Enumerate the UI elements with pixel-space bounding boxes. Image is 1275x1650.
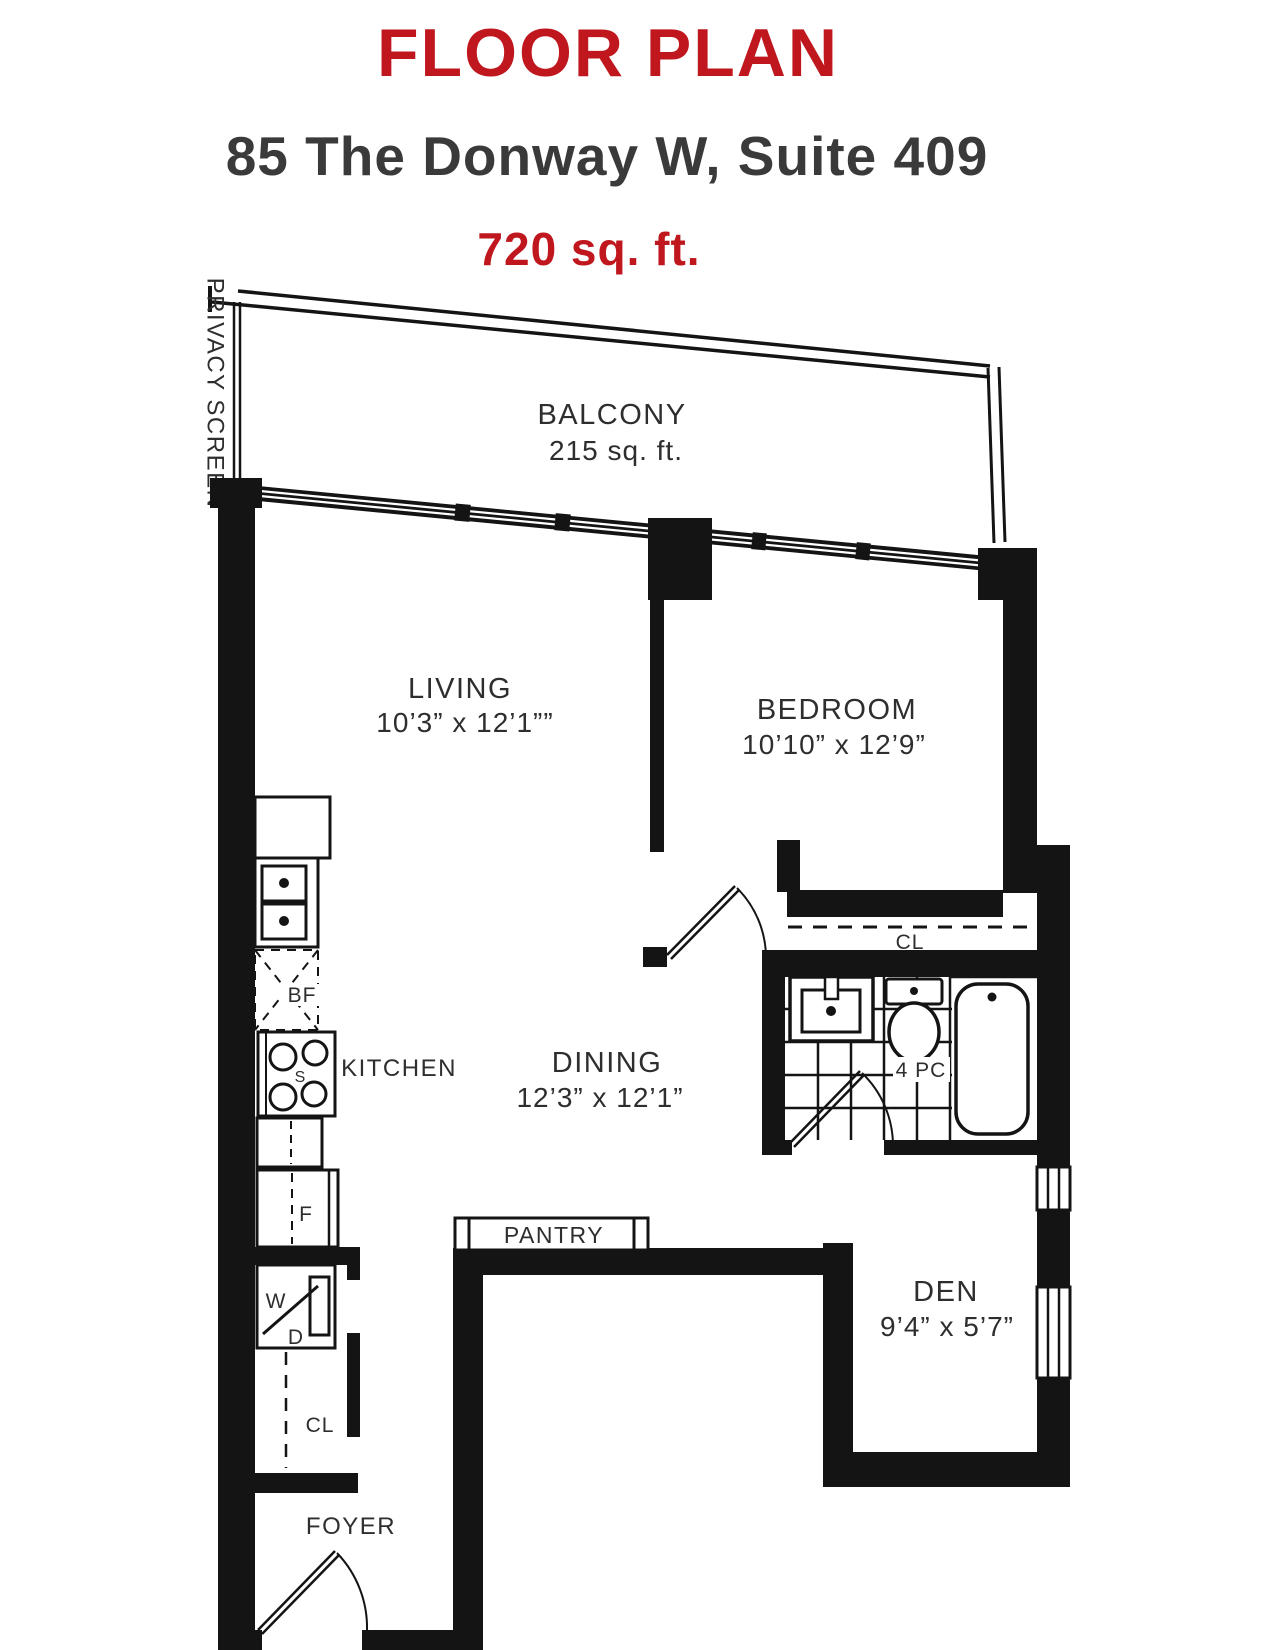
wall-segment xyxy=(347,1247,360,1280)
bar-fridge: BF xyxy=(255,950,324,1030)
wall-segment xyxy=(347,1333,360,1437)
den-label: DEN xyxy=(913,1276,979,1308)
privacy-screen-line xyxy=(234,302,240,486)
floor-plan-drawing: PRIVACY SCREEN xyxy=(0,0,1275,1650)
wall-segment xyxy=(453,1248,853,1275)
toilet xyxy=(886,979,942,1061)
bathroom-label: 4 PC xyxy=(896,1059,947,1082)
bedroom-closet: CL xyxy=(788,927,1033,954)
foyer-closet: CL xyxy=(286,1352,334,1468)
vanity-sink xyxy=(790,977,873,1041)
wall-segment xyxy=(255,1247,355,1265)
fridge: F xyxy=(257,1170,338,1247)
foyer-label: FOYER xyxy=(306,1513,396,1540)
dining-dims: 12’3” x 12’1” xyxy=(516,1082,683,1113)
wall-segment xyxy=(884,1140,1037,1155)
wall-segment xyxy=(787,890,1003,917)
bathroom: 4 PC xyxy=(785,977,1037,1140)
wall-segment xyxy=(218,483,255,1650)
bedroom-label: BEDROOM xyxy=(757,694,917,726)
bedroom-door xyxy=(667,886,766,959)
balcony-label: BALCONY xyxy=(537,399,686,431)
bar-fridge-label: BF xyxy=(288,984,317,1007)
privacy-screen-label: PRIVACY SCREEN xyxy=(202,278,229,509)
wall-segment xyxy=(218,1630,262,1650)
wall-segment xyxy=(762,950,1037,977)
stove: S xyxy=(258,1032,335,1116)
foyer-closet-label: CL xyxy=(306,1414,335,1437)
entry-door xyxy=(258,1551,367,1634)
wall-segment xyxy=(255,1473,358,1493)
wall-segment xyxy=(762,977,785,1152)
kitchen-counter xyxy=(255,797,330,947)
stove-label: S xyxy=(295,1069,306,1086)
wall-segment xyxy=(1003,600,1037,845)
balcony-size: 215 sq. ft. xyxy=(549,435,683,466)
wall-segment xyxy=(650,598,664,852)
washer-label: W xyxy=(266,1290,287,1313)
kitchen-counter-2 xyxy=(257,1118,322,1167)
bedroom-dims: 10’10” x 12’9” xyxy=(742,729,926,760)
dining-label: DINING xyxy=(552,1047,663,1079)
wall-segment xyxy=(1037,893,1070,1167)
wall-segment xyxy=(978,548,1037,600)
pantry-label: PANTRY xyxy=(504,1222,604,1248)
wall-segment xyxy=(453,1275,483,1650)
wall-segment xyxy=(823,1452,1070,1487)
washer-dryer: W D xyxy=(257,1265,335,1349)
fridge-label: F xyxy=(299,1203,313,1226)
den-dims: 9’4” x 5’7” xyxy=(880,1311,1014,1342)
wall-segment xyxy=(648,518,712,600)
kitchen-label: KITCHEN xyxy=(341,1055,457,1082)
window-wall xyxy=(258,486,988,571)
wall-segment xyxy=(823,1243,853,1487)
wall-segment xyxy=(1037,1210,1070,1287)
wall-segment xyxy=(1037,1378,1070,1452)
bedroom-closet-label: CL xyxy=(896,931,925,954)
bathtub xyxy=(956,984,1028,1134)
floor-plan-page: FLOOR PLAN 85 The Donway W, Suite 409 72… xyxy=(0,0,1275,1650)
wall-segment xyxy=(777,840,800,892)
wall-segment xyxy=(643,947,667,967)
living-label: LIVING xyxy=(408,673,512,705)
living-dims: 10’3” x 12’1”” xyxy=(376,707,553,738)
wall-segment xyxy=(1003,845,1070,893)
dryer-label: D xyxy=(288,1326,304,1349)
wall-segment xyxy=(762,1140,792,1155)
pantry: PANTRY xyxy=(455,1218,648,1250)
